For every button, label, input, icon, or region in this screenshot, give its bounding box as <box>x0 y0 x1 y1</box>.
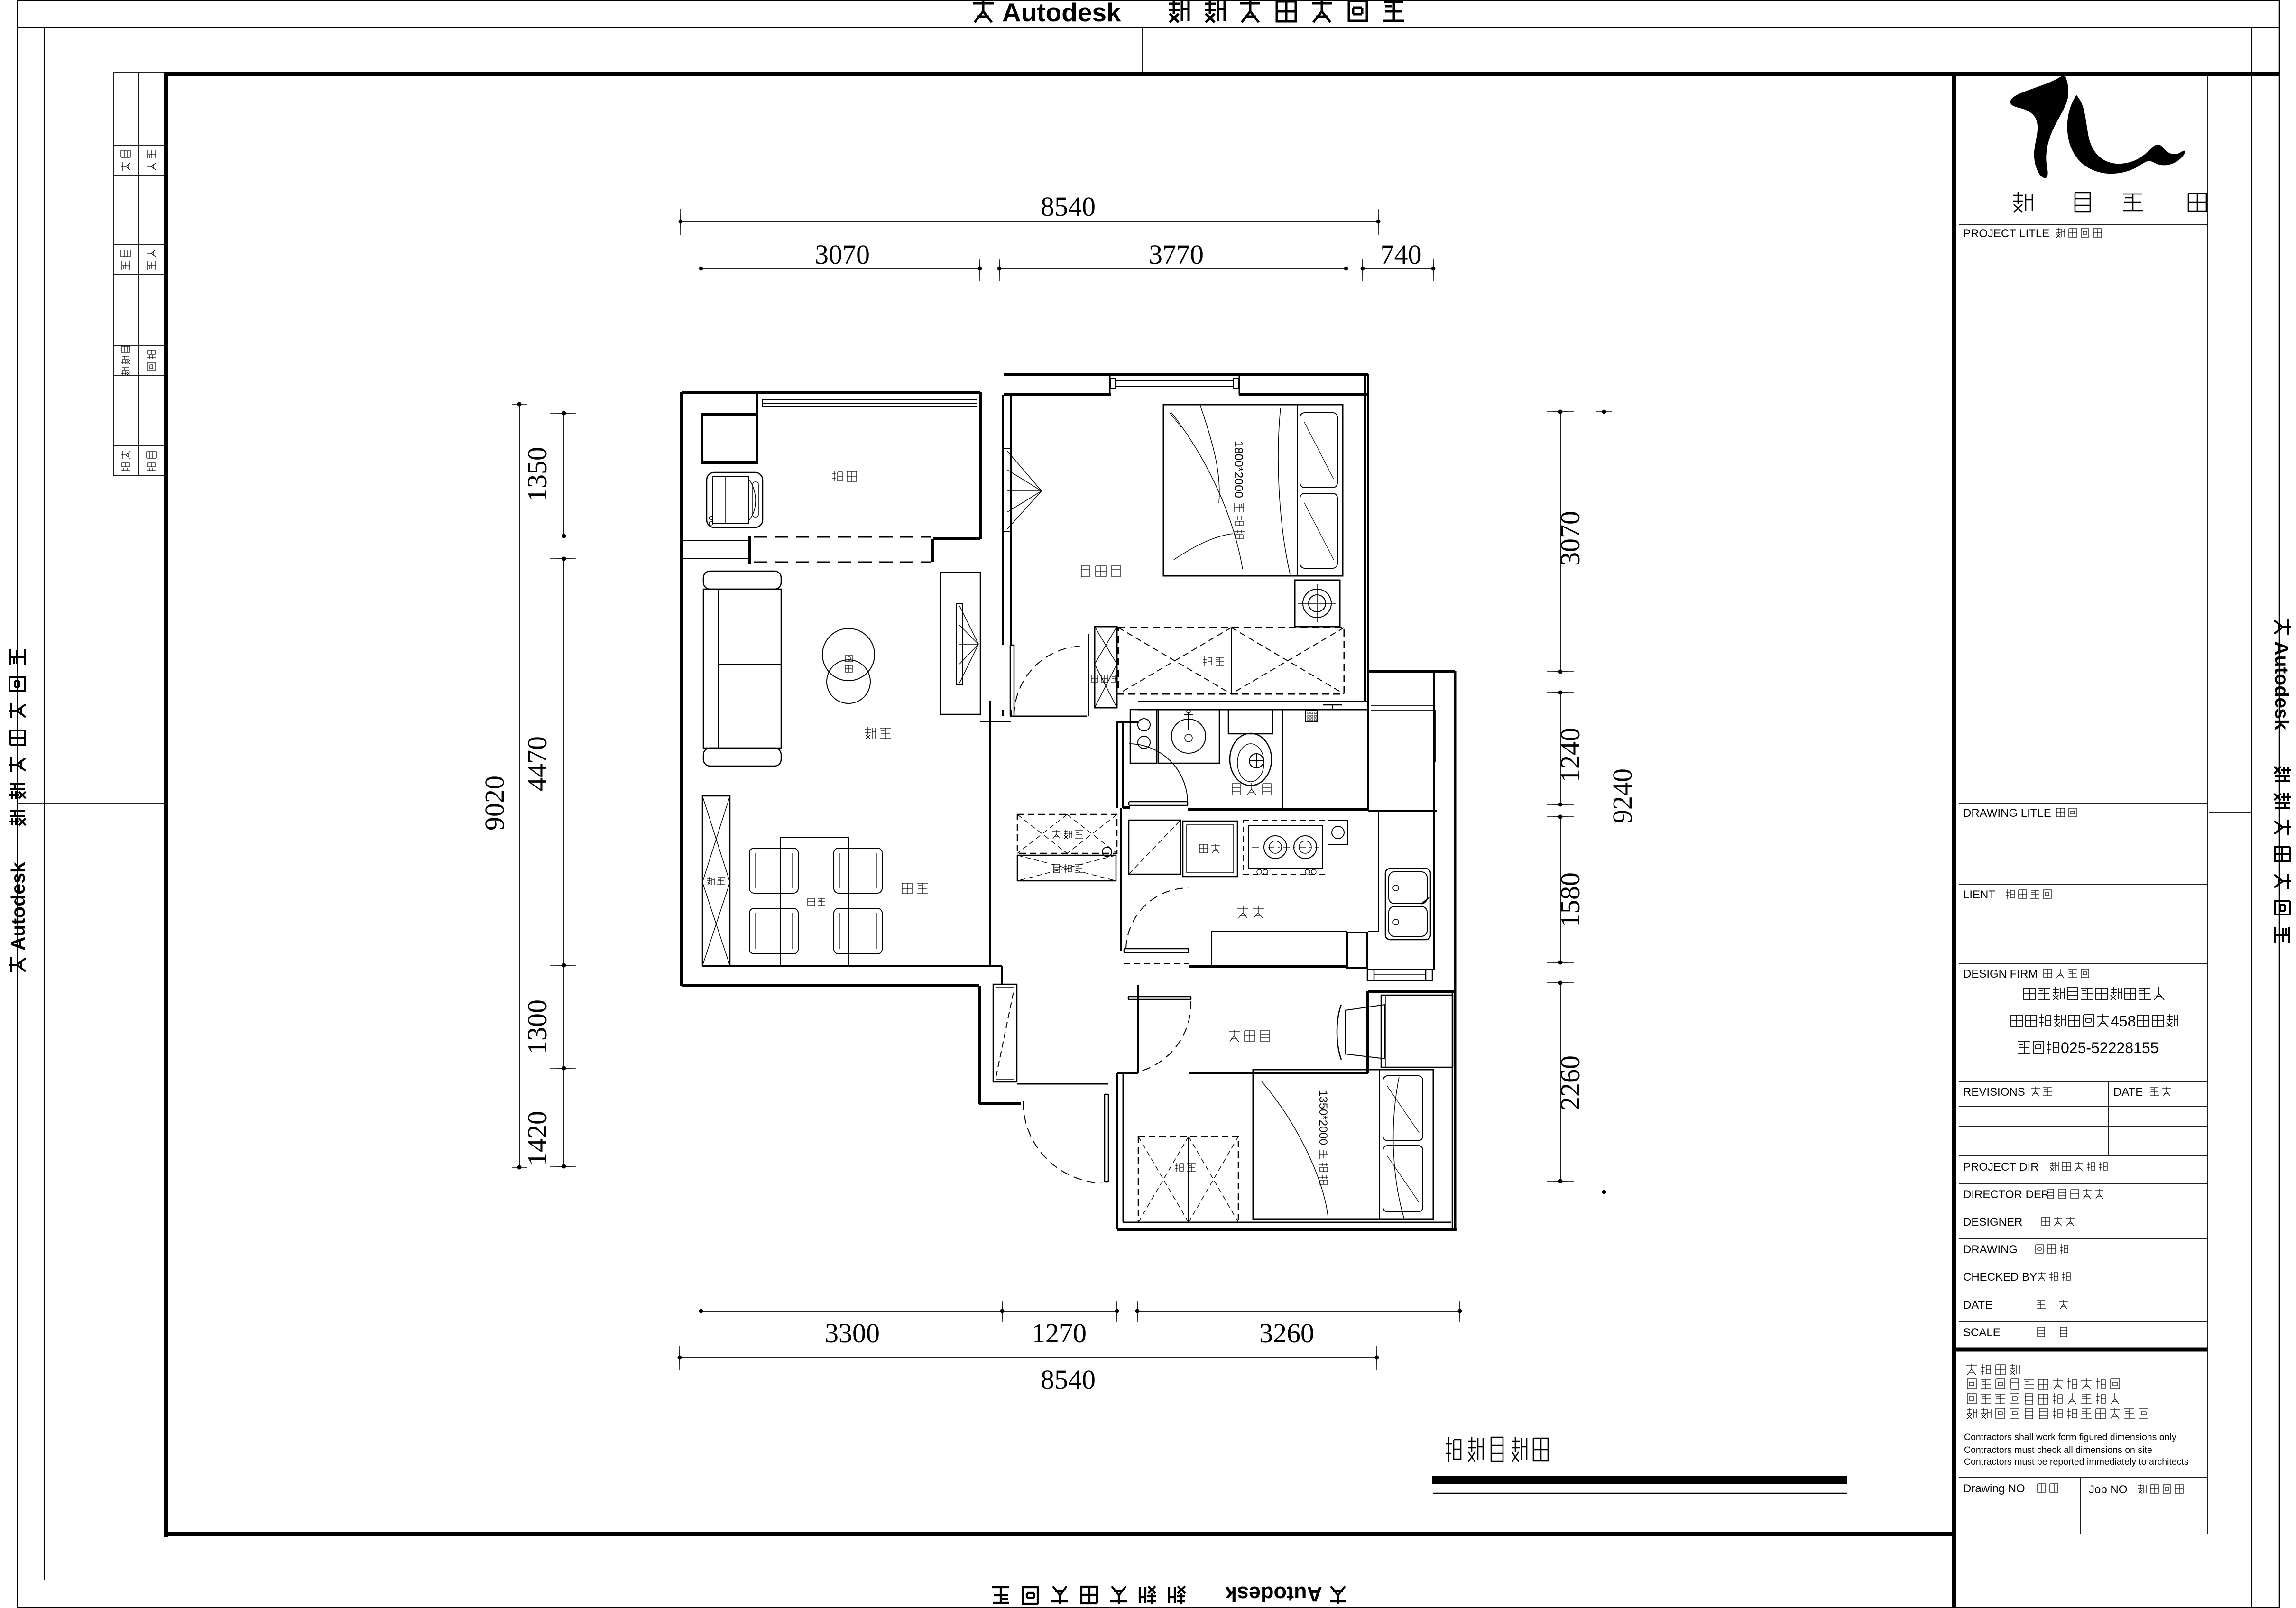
svg-text:9240: 9240 <box>1607 768 1638 823</box>
svg-text:DESIGN FIRM: DESIGN FIRM <box>1963 968 2038 980</box>
svg-text:4470: 4470 <box>522 736 553 791</box>
svg-text:3070: 3070 <box>1555 511 1586 566</box>
svg-text:DRAWING: DRAWING <box>1963 1243 2018 1256</box>
svg-text:PROJECT DIR: PROJECT DIR <box>1963 1161 2039 1174</box>
svg-text:3260: 3260 <box>1259 1318 1314 1349</box>
svg-text:Contractors must be reporte: Contractors must be reported immediately… <box>1964 1457 2189 1467</box>
svg-text:1350*2000: 1350*2000 <box>1317 1090 1329 1145</box>
svg-text:DATE: DATE <box>1963 1299 1992 1312</box>
svg-text:PROJECT LITLE: PROJECT LITLE <box>1963 227 2049 240</box>
svg-text:1420: 1420 <box>522 1111 553 1166</box>
svg-text:1270: 1270 <box>1032 1318 1087 1349</box>
svg-text:3070: 3070 <box>815 239 870 270</box>
svg-text:2260: 2260 <box>1555 1055 1586 1110</box>
svg-text:1800*2000: 1800*2000 <box>1232 441 1245 498</box>
svg-text:CHECKED BY: CHECKED BY <box>1963 1271 2037 1284</box>
svg-text:740: 740 <box>1381 239 1422 270</box>
svg-text:Autodesk: Autodesk <box>1225 1582 1322 1606</box>
svg-text:DESIGNER: DESIGNER <box>1963 1216 2022 1229</box>
svg-text:3300: 3300 <box>825 1318 880 1349</box>
svg-text:458: 458 <box>2111 1013 2136 1030</box>
svg-text:1240: 1240 <box>1555 728 1586 783</box>
svg-text:8540: 8540 <box>1041 1364 1096 1395</box>
svg-text:Drawing NO: Drawing NO <box>1963 1482 2025 1495</box>
svg-text:1580: 1580 <box>1555 872 1586 927</box>
svg-text:1350: 1350 <box>522 447 553 502</box>
svg-text:8540: 8540 <box>1041 191 1096 222</box>
svg-text:DRAWING LITLE: DRAWING LITLE <box>1963 807 2051 820</box>
svg-text:Autodesk: Autodesk <box>1002 0 1121 27</box>
svg-text:Autodesk: Autodesk <box>7 862 29 951</box>
svg-text:3770: 3770 <box>1149 239 1204 270</box>
svg-text:REVISIONS: REVISIONS <box>1963 1086 2025 1099</box>
svg-text:Autodesk: Autodesk <box>2271 641 2293 730</box>
svg-text:Job NO: Job NO <box>2089 1483 2127 1496</box>
svg-text:SCALE: SCALE <box>1963 1326 2001 1339</box>
svg-text:LIENT: LIENT <box>1963 888 1995 901</box>
svg-text:DATE: DATE <box>2113 1086 2143 1099</box>
svg-text:Contractors shall work form: Contractors shall work form figured dime… <box>1964 1432 2176 1442</box>
svg-text:9020: 9020 <box>479 776 510 831</box>
svg-text:Contractors must check all: Contractors must check all dimensions on… <box>1964 1445 2152 1455</box>
svg-text:1300: 1300 <box>522 999 553 1054</box>
svg-text:DIRECTOR DER: DIRECTOR DER <box>1963 1188 2049 1201</box>
svg-text:025-52228155: 025-52228155 <box>2061 1039 2158 1056</box>
